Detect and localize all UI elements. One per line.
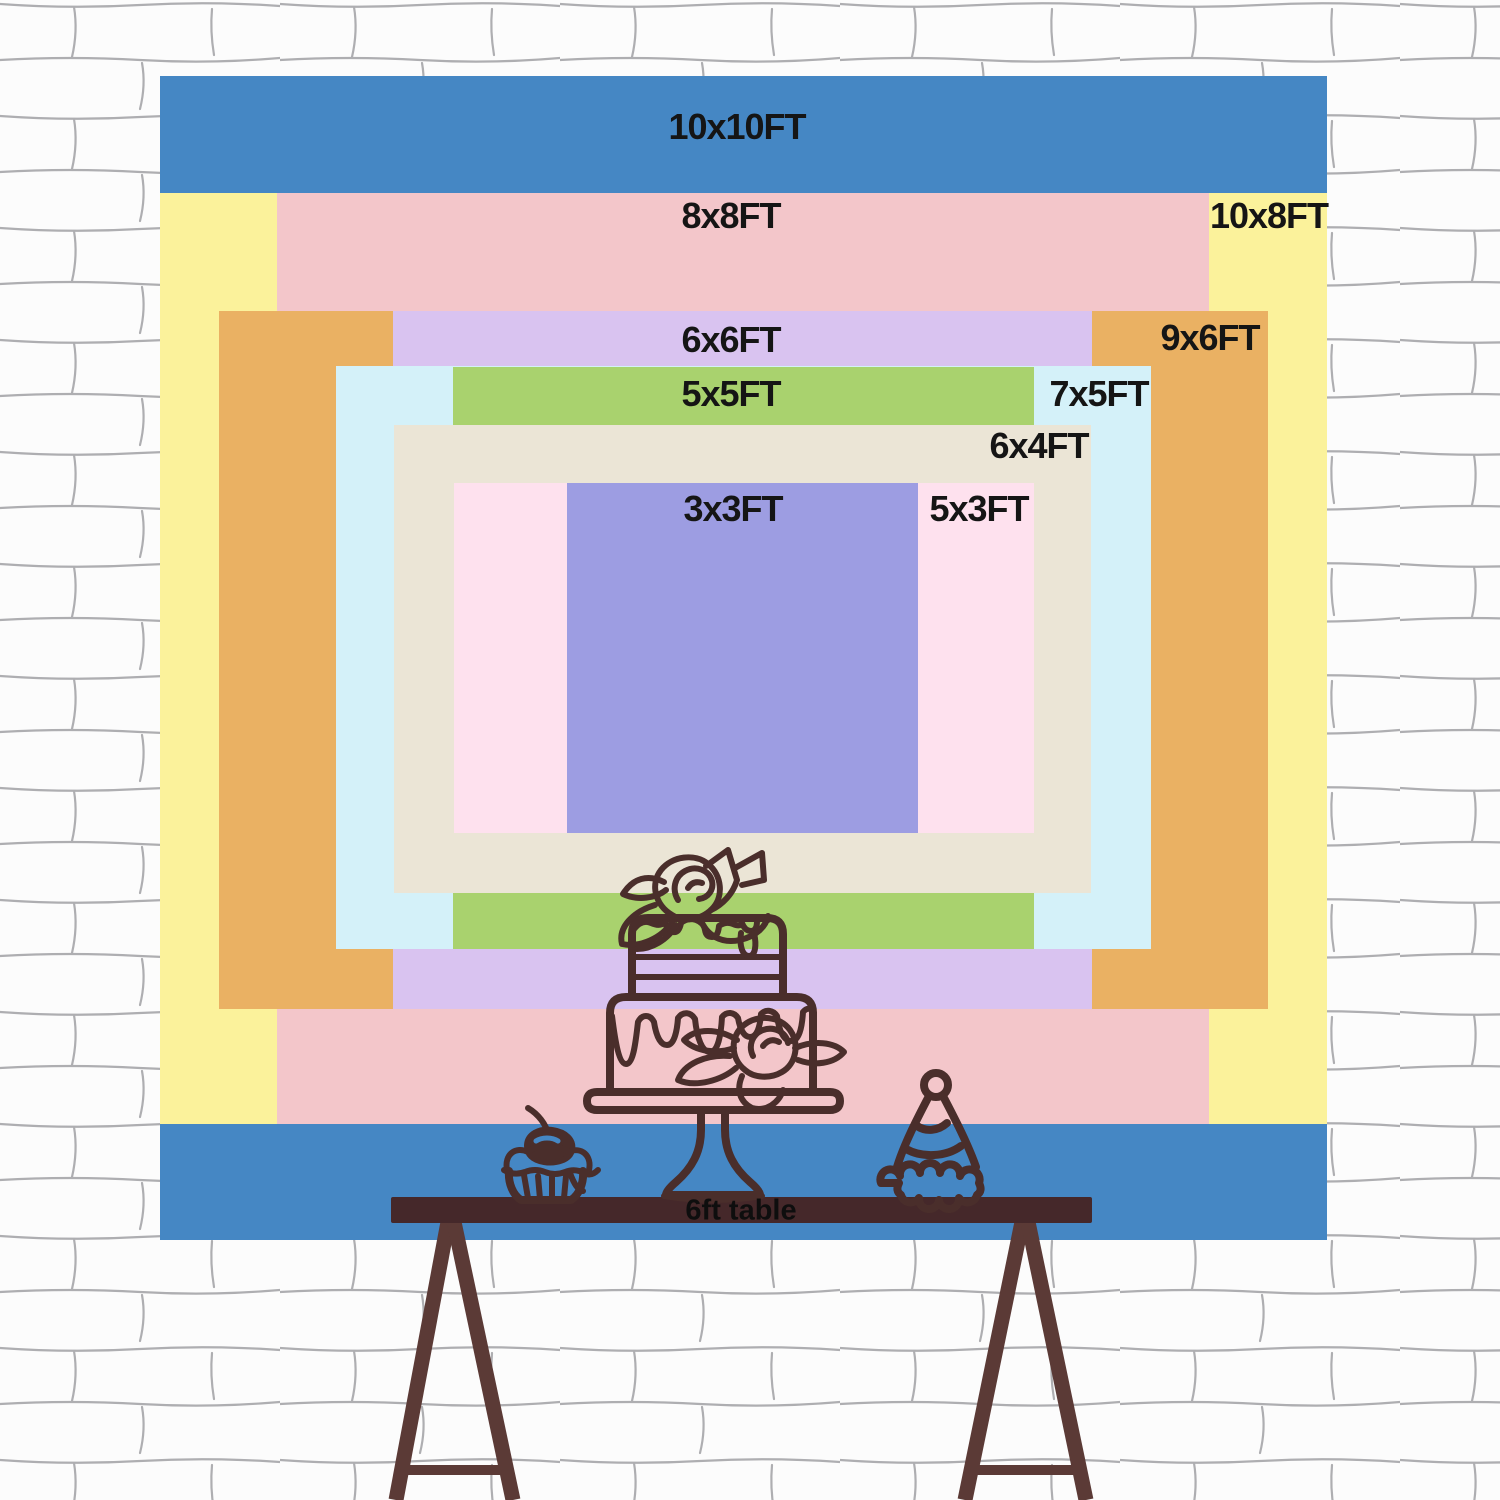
table-legs: [396, 1222, 1086, 1500]
backdrop-size-chart-poster: 10x10FT10x8FT8x8FT9x6FT6x6FT7x5FT5x5FT6x…: [0, 0, 1500, 1500]
cake-illustration: [587, 850, 844, 1200]
party-hat-illustration: [880, 1073, 980, 1209]
decor-artwork: [0, 0, 1500, 1500]
table-size-label: 6ft table: [685, 1195, 796, 1228]
cupcake-illustration: [504, 1108, 598, 1200]
